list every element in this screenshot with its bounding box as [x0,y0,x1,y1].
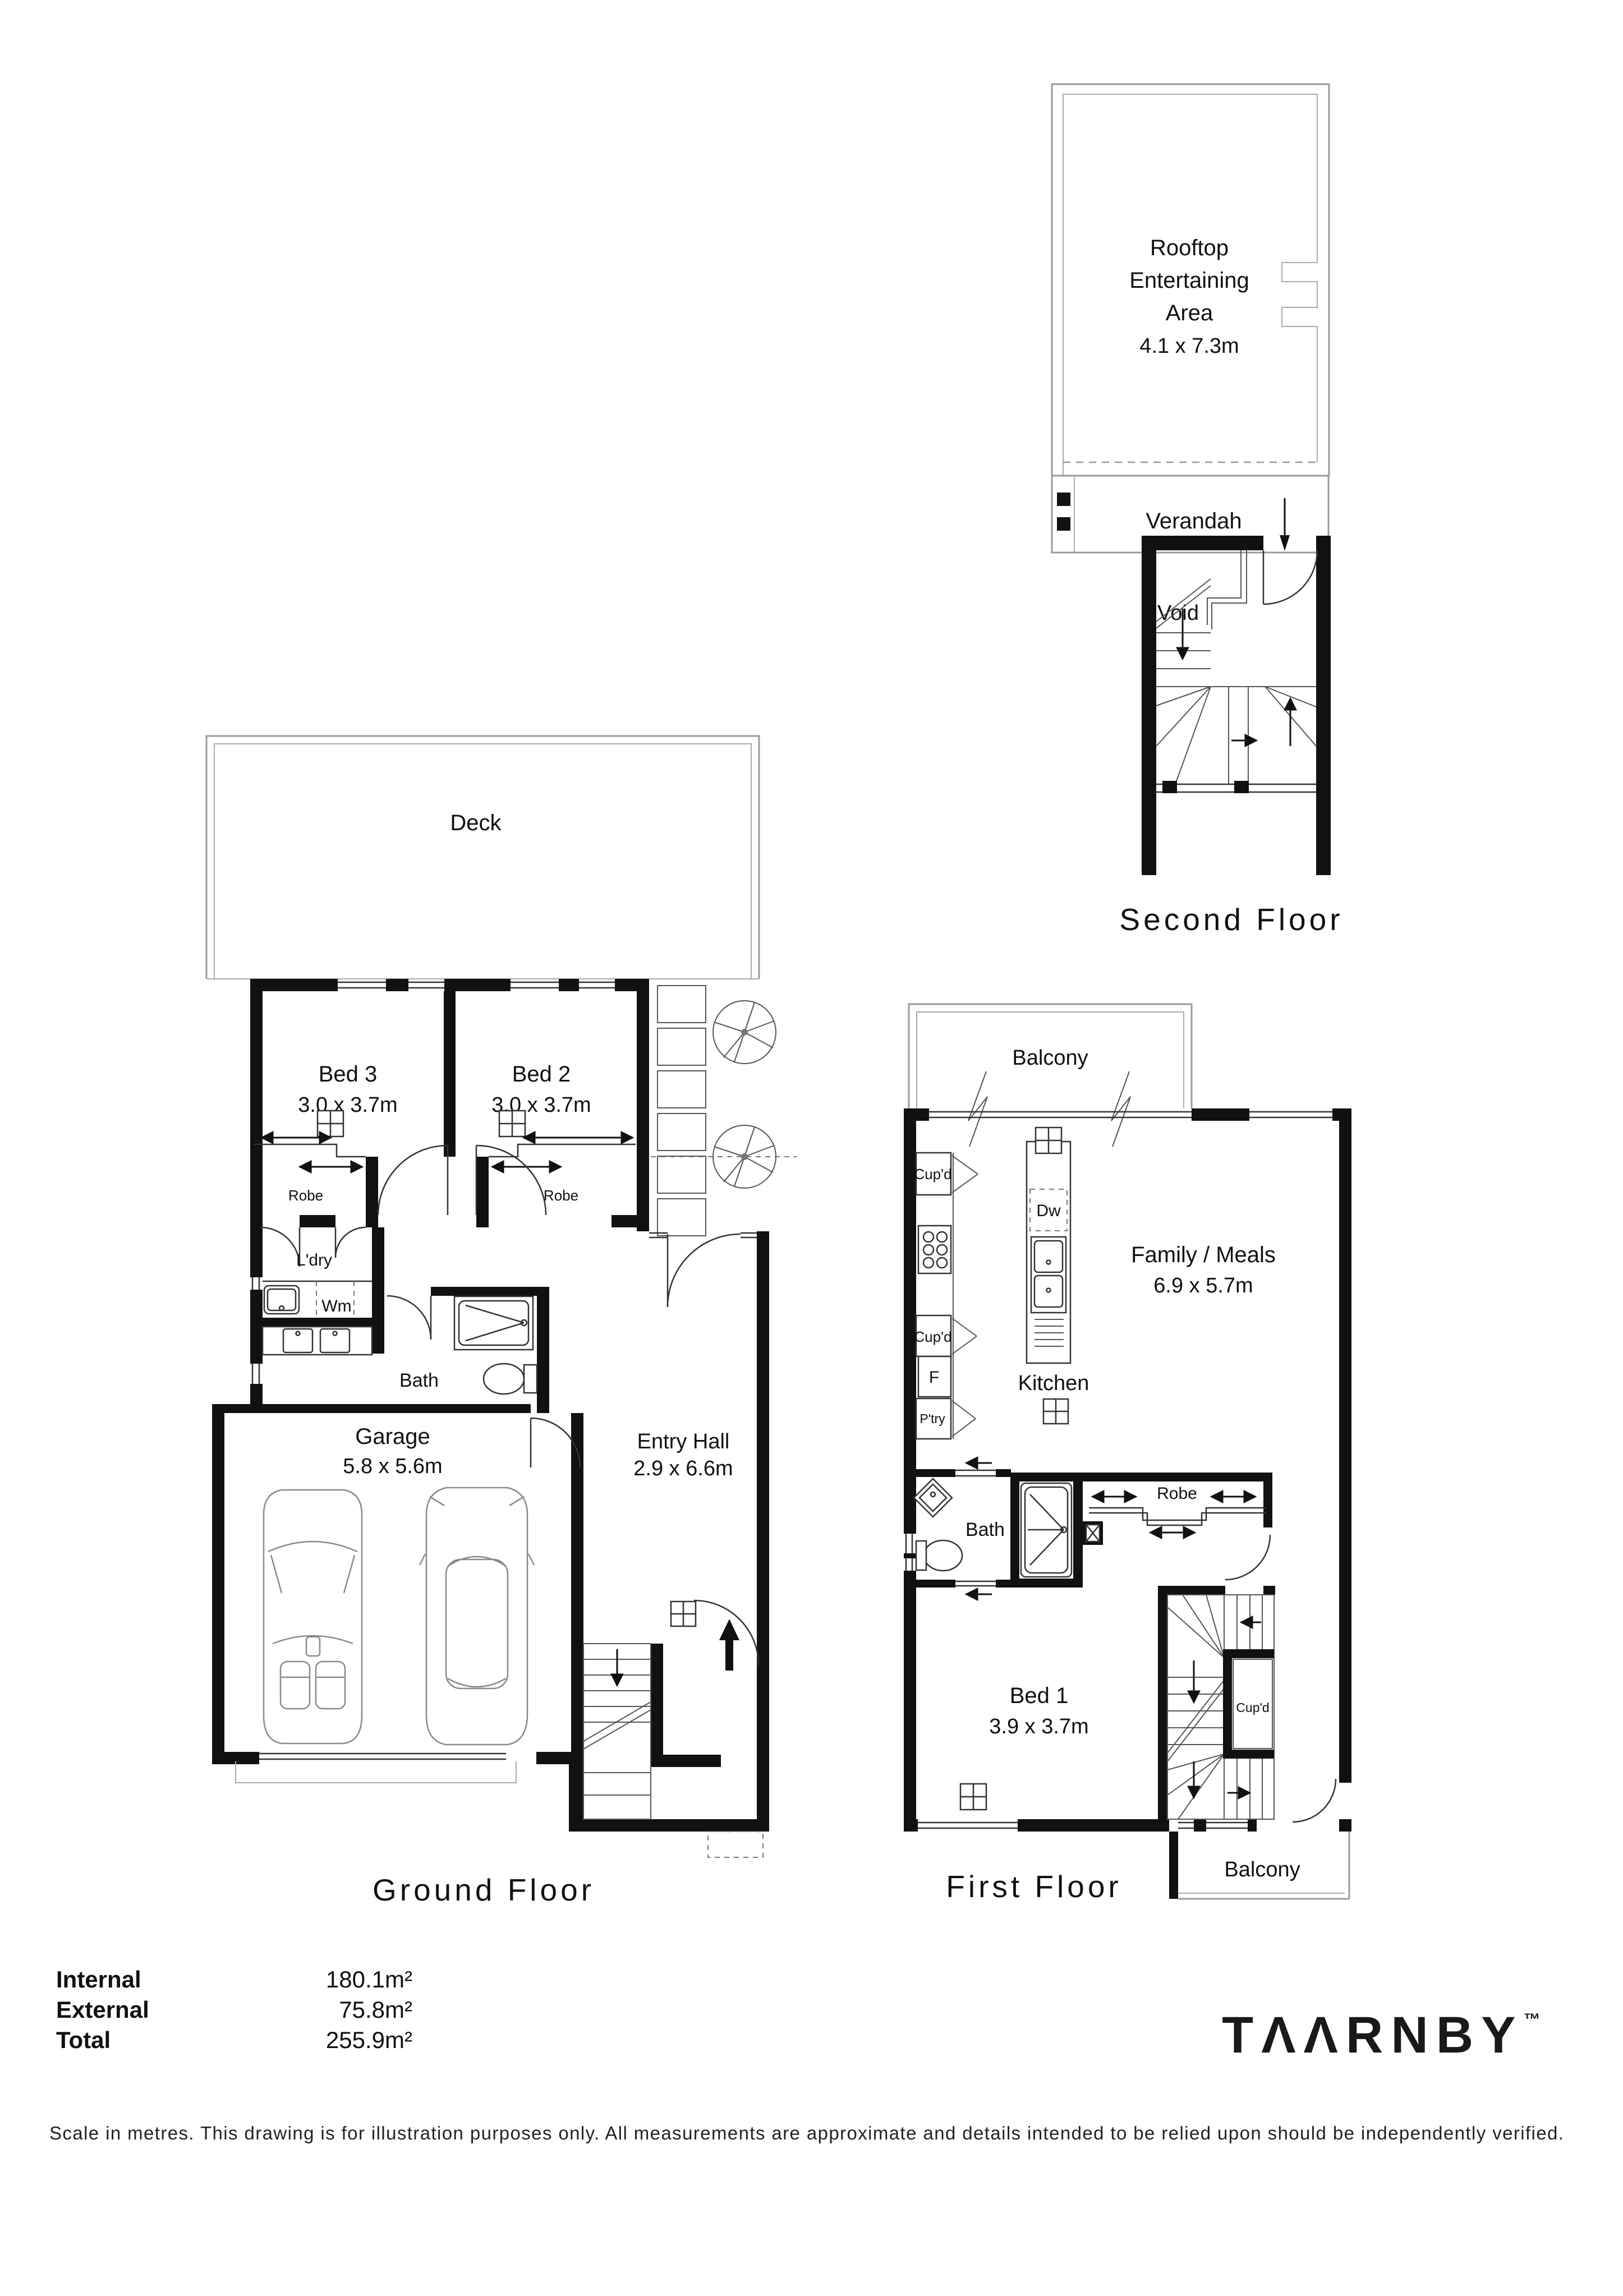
planter-icon [658,1028,706,1065]
first-floor-plan: Balcony Cup'd [875,976,1391,1930]
door-arc-icon [1263,550,1317,604]
window-symbol-icon [1036,1128,1061,1153]
void-stairwell: Void [1142,498,1331,875]
balcony-bottom-label: Balcony [1224,1858,1300,1881]
slider-track [1178,1823,1248,1828]
down-arrow-icon [1280,498,1290,551]
slider-track [955,1581,996,1586]
second-floor-plan: Rooftop Entertaining Area 4.1 x 7.3m Ver… [1027,67,1374,965]
fridge-label: F [929,1368,939,1387]
planter-icon [658,1071,706,1108]
wm-label: Wm [321,1297,351,1315]
bed3-label: Bed 3 [319,1062,378,1087]
toilet-icon [916,1540,962,1571]
planter-icon [658,986,706,1023]
bed1-dims: 3.9 x 3.7m [989,1715,1088,1738]
rooftop-area: Rooftop Entertaining Area 4.1 x 7.3m [1052,84,1329,476]
bed1-room: Bed 1 3.9 x 3.7m [960,1683,1089,1810]
window-icon [1249,1112,1332,1117]
stairs-icon [1156,550,1316,784]
laundry-trough-icon [264,1286,299,1314]
garage-label: Garage [355,1424,430,1449]
cooktop-icon [918,1226,951,1273]
car-icon [420,1488,534,1745]
rooftop-label-1: Rooftop [1150,236,1229,260]
slider-track [955,1470,996,1476]
duct-icon [1083,1521,1103,1545]
window-symbol-icon [960,1784,986,1810]
stairs-icon [583,1644,651,1819]
cupboard: Cup'd [914,1315,977,1356]
deck: Deck [206,736,759,979]
bed1-label: Bed 1 [1010,1683,1069,1708]
area-value: 180.1m² [213,1966,412,1993]
post-icon [1057,517,1070,531]
pantry-label: P'try [919,1411,945,1426]
bath-label: Bath [965,1519,1005,1540]
verandah-label: Verandah [1146,509,1242,533]
area-row: Total 255.9m² [56,2025,415,2055]
door-arc-icon [378,1145,546,1215]
brand-name: TΛΛRNBY [1222,2009,1524,2061]
area-row: External 75.8m² [56,1995,415,2025]
cupd-label: Cup'd [914,1166,951,1182]
area-value: 75.8m² [213,1996,412,2023]
bed2-label: Bed 2 [512,1062,571,1087]
dw-label: Dw [1036,1202,1061,1220]
area-table: Internal 180.1m² External 75.8m² Total 2… [56,1964,415,2055]
planter-icon [658,1199,706,1236]
bath-ground: Bath [263,1296,537,1394]
balcony-top-label: Balcony [1012,1046,1088,1070]
window-icon [906,1534,912,1571]
robe-front [254,1144,366,1157]
bed2-room: Bed 2 3.0 x 3.7m Robe [489,1062,636,1204]
floor-plan-page: Rooftop Entertaining Area 4.1 x 7.3m Ver… [0,0,1623,2296]
balcony-top: Balcony [909,1004,1192,1147]
trademark-symbol: ™ [1524,2010,1541,2030]
door-arc-icon [387,1296,431,1340]
casement-icon [968,1071,987,1147]
rooftop-dims: 4.1 x 7.3m [1139,334,1239,358]
robe-label: Robe [544,1187,578,1204]
cupboard: Cup'd [914,1153,978,1195]
robe-label: Robe [288,1187,323,1204]
side-garden [651,986,797,1236]
area-label: External [56,1996,213,2023]
window-symbol-icon [499,1111,525,1137]
area-label: Total [56,2027,213,2054]
window-symbol-icon [671,1602,696,1626]
bath-label: Bath [399,1370,439,1391]
shower-icon [454,1296,533,1350]
post-icon [1057,493,1070,506]
window-icon [918,1823,1018,1828]
kitchen-label: Kitchen [1018,1372,1089,1395]
garage-dims: 5.8 x 5.6m [343,1455,442,1478]
second-floor-title: Second Floor [1119,902,1343,937]
robe-label: Robe [1157,1484,1197,1503]
entry-up-arrow-icon [719,1619,739,1671]
brand-logo: TΛΛRNBY ™ [1222,2009,1587,2061]
cupd-label: Cup'd [1236,1700,1269,1715]
laundry-label: L'dry [296,1251,332,1269]
ground-floor-title: Ground Floor [373,1872,595,1907]
area-row: Internal 180.1m² [56,1964,415,1995]
garage-door [236,1754,516,1783]
cupd-label: Cup'd [914,1328,951,1345]
area-label: Internal [56,1966,213,1993]
laundry: L'dry Wm [260,1227,372,1318]
ground-floor-plan: Deck [185,718,802,1924]
deck-label: Deck [450,811,502,835]
planter-icon [658,1156,706,1193]
tree-icon [713,1001,776,1064]
toilet-icon [484,1364,537,1394]
door-arc-icon [1293,1779,1336,1822]
basin-icon [914,1479,952,1517]
porch-outline [708,1832,763,1857]
family-meals-dims: 6.9 x 5.7m [1153,1274,1253,1297]
disclaimer-text: Scale in metres. This drawing is for ill… [49,2123,1592,2144]
vanity-icon [263,1327,372,1355]
rooftop-label-2: Entertaining [1129,268,1249,293]
cupboard: Cup'd [1223,1649,1274,1759]
planter-icon [658,1114,706,1151]
slider-track [929,1112,1192,1117]
car-icon [264,1490,362,1743]
pantry: P'try [916,1398,976,1439]
entry-hall-label: Entry Hall [637,1430,730,1453]
kitchen-island: Dw [1027,1128,1070,1363]
svg-defs [0,0,6,6]
door-arc-icon [649,1233,757,1307]
door-arc-icon [1225,1535,1270,1580]
fridge-icon: F [918,1356,951,1397]
robe-first: Robe [1083,1473,1272,1580]
stairs-first: Cup'd [1158,1586,1275,1822]
shower-icon [1010,1473,1083,1588]
garage: Garage 5.8 x 5.6m [236,1418,580,1783]
entry-hall-dims: 2.9 x 6.6m [633,1457,733,1480]
area-value: 255.9m² [213,2027,412,2054]
window-symbol-icon [318,1111,343,1137]
casement-icon [1111,1071,1130,1147]
rooftop-label-3: Area [1166,301,1213,325]
bath-first: Bath [914,1463,1103,1594]
family-meals-label: Family / Meals [1131,1243,1276,1267]
bed3-dims: 3.0 x 3.7m [298,1093,397,1117]
kitchen: Cup'd Cup'd F P'try [914,1128,1089,1439]
window-symbol-icon [1043,1399,1068,1424]
first-floor-title: First Floor [946,1869,1122,1904]
